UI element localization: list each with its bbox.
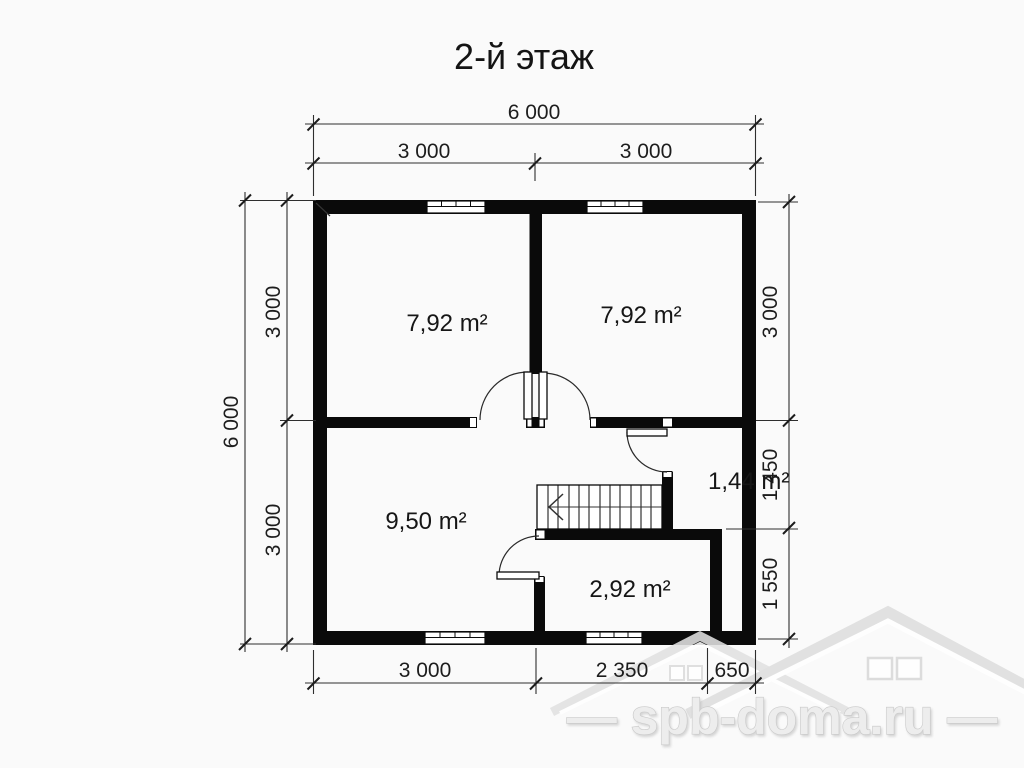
outer-wall-right bbox=[742, 200, 756, 645]
door-top-left-room bbox=[480, 372, 532, 420]
watermark-text: — spb-doma.ru — bbox=[567, 689, 998, 745]
door-jamb bbox=[536, 530, 545, 539]
interior-walls bbox=[327, 214, 742, 631]
dim-top-right: 3 000 bbox=[620, 140, 673, 163]
wall-right-strip-divider bbox=[710, 529, 722, 631]
dim-top-total: 6 000 bbox=[508, 101, 561, 124]
wall-closet-left bbox=[662, 472, 673, 530]
dim-right-lower: 1 550 bbox=[759, 558, 782, 611]
room-label-top-right: 7,92 m² bbox=[600, 302, 681, 329]
dim-left-total: 6 000 bbox=[220, 396, 243, 449]
dim-bottom-middle: 2 350 bbox=[596, 659, 649, 682]
wall-middle-left bbox=[327, 417, 476, 428]
wall-stairs-bottom bbox=[535, 529, 722, 540]
logo-window-icon bbox=[670, 666, 684, 680]
window bbox=[582, 201, 648, 213]
door-top-right-room bbox=[539, 372, 590, 420]
window bbox=[581, 632, 647, 644]
room-label-closet: 1,44 m² bbox=[708, 468, 789, 495]
staircase bbox=[537, 485, 662, 529]
room-label-bottom-left: 9,50 m² bbox=[385, 508, 466, 535]
dim-left-lower: 3 000 bbox=[262, 504, 285, 557]
room-labels: 7,92 m² 7,92 m² 1,44 m² 9,50 m² 2,92 m² bbox=[385, 302, 789, 603]
dim-left-upper: 3 000 bbox=[262, 286, 285, 339]
wall-top-rooms-divider bbox=[530, 214, 543, 374]
dim-top-left: 3 000 bbox=[398, 140, 451, 163]
dim-bottom-right: 650 bbox=[714, 659, 749, 682]
floor-plan-drawing: 2-й этаж bbox=[0, 0, 1024, 768]
room-label-bottom-middle: 2,92 m² bbox=[589, 576, 670, 603]
logo-window-icon bbox=[897, 658, 921, 679]
door-jamb bbox=[470, 418, 477, 428]
wall-bottom-rooms-divider bbox=[534, 577, 545, 631]
window bbox=[420, 632, 490, 644]
doors bbox=[480, 372, 667, 579]
room-label-top-left: 7,92 m² bbox=[406, 310, 487, 337]
door-closet bbox=[627, 429, 667, 472]
door-bottom-middle-room bbox=[497, 536, 539, 579]
door-jamb bbox=[591, 418, 597, 427]
logo-window-icon bbox=[868, 658, 892, 679]
page-title: 2-й этаж bbox=[454, 36, 594, 77]
outer-wall-left bbox=[313, 200, 327, 645]
dim-bottom-left: 3 000 bbox=[399, 659, 452, 682]
dimensions-left: 6 000 3 000 3 000 bbox=[220, 192, 316, 652]
door-jamb bbox=[663, 418, 673, 427]
dimensions-top: 6 000 3 000 3 000 bbox=[305, 101, 764, 196]
logo-window-icon bbox=[688, 666, 702, 680]
outer-wall-top bbox=[313, 200, 756, 214]
dim-right-upper: 3 000 bbox=[759, 286, 782, 339]
window bbox=[422, 201, 490, 213]
